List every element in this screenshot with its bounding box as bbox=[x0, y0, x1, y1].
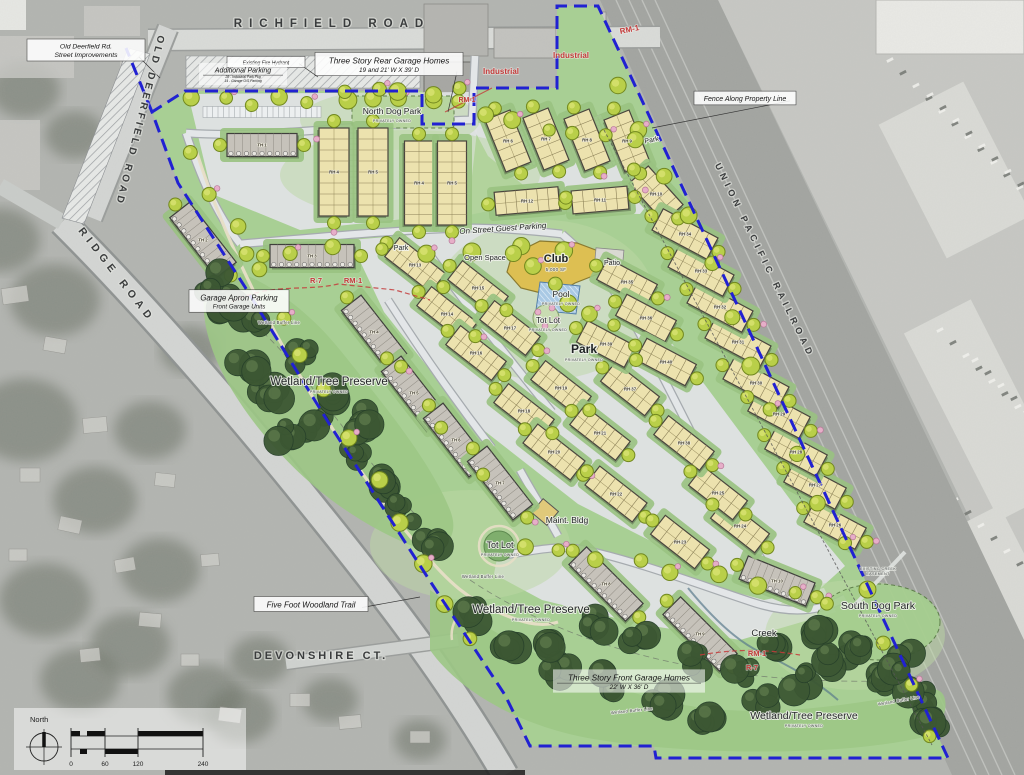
map-label: Tot Lot bbox=[536, 316, 561, 325]
shrub-icon bbox=[532, 519, 538, 525]
legend-panel bbox=[14, 708, 246, 770]
building-label: RH 22 bbox=[610, 492, 623, 497]
tree-icon bbox=[694, 702, 724, 732]
map-label: Creek bbox=[751, 628, 777, 639]
building-label: RH 34 bbox=[679, 232, 692, 237]
map-label: DEVONSHIRE CT. bbox=[254, 650, 388, 662]
callout-text: 22' W X 36' D bbox=[609, 684, 649, 691]
shrub-icon bbox=[850, 534, 856, 540]
building-label: TH 6 bbox=[451, 438, 461, 443]
parking-lane bbox=[203, 107, 321, 118]
tree-icon bbox=[242, 357, 271, 386]
tree-icon bbox=[891, 662, 910, 681]
shrub-icon bbox=[675, 564, 681, 570]
building-label: RH 30 bbox=[750, 381, 763, 386]
map-label: Open Space bbox=[464, 253, 506, 262]
shrub-icon bbox=[432, 245, 438, 251]
map-label: RM-1 bbox=[344, 276, 362, 285]
legend: North 0 60 120 240 bbox=[14, 708, 246, 770]
map-label: Tot Lot bbox=[486, 540, 514, 550]
shrub-icon bbox=[331, 229, 337, 235]
shrub-icon bbox=[569, 242, 575, 248]
map-label: Patio bbox=[604, 260, 620, 267]
shrub-icon bbox=[642, 187, 648, 193]
tree-icon bbox=[804, 615, 833, 644]
shrub-icon bbox=[517, 111, 523, 117]
shrub-icon bbox=[429, 555, 435, 561]
building-label: RH 31 bbox=[732, 340, 745, 345]
shrub-icon bbox=[385, 80, 391, 86]
tree-icon bbox=[622, 627, 641, 646]
map-label: Wetland Buffer Line bbox=[462, 574, 505, 579]
building-label: RH 40 bbox=[660, 360, 673, 365]
callout-text: Three Story Rear Garage Homes bbox=[329, 56, 450, 65]
building-label: RH 13 bbox=[409, 263, 422, 268]
building-label: RH 11 bbox=[594, 198, 607, 203]
tree-icon bbox=[650, 692, 676, 718]
map-sublabel: PRIVATELY OWNED bbox=[542, 302, 580, 306]
callout-text: Street Improvements bbox=[54, 52, 118, 59]
callout-text: Old Deerfield Rd. bbox=[60, 44, 112, 51]
shrub-icon bbox=[595, 305, 601, 311]
tree-icon bbox=[590, 617, 618, 645]
tree-icon bbox=[264, 426, 293, 455]
shrub-icon bbox=[564, 541, 570, 547]
callout: Garage Apron ParkingFront Garage Units bbox=[189, 290, 289, 313]
callout: Additional Parking28 - Industrial Park P… bbox=[199, 63, 287, 85]
map-label: RICHFIELD ROAD bbox=[234, 18, 430, 30]
tree-icon bbox=[795, 665, 812, 682]
shrub-icon bbox=[406, 368, 412, 374]
tree-icon bbox=[756, 684, 780, 708]
scale-tick-60: 60 bbox=[101, 761, 109, 768]
site-plan-map: Old Deerfield Rd.Street ImprovementsThre… bbox=[0, 0, 1024, 775]
map-label: RM-1 bbox=[748, 649, 766, 658]
map-sublabel: PRIVATELY OWNED bbox=[512, 618, 550, 622]
building-label: TH 8 bbox=[601, 582, 611, 587]
building-label: RH 4 bbox=[329, 170, 339, 175]
shrub-icon bbox=[775, 401, 781, 407]
building-label: RH 14 bbox=[441, 312, 454, 317]
north-label: North bbox=[30, 715, 48, 724]
callout-text: Additional Parking bbox=[214, 68, 272, 75]
callout-text: Garage Apron Parking bbox=[200, 293, 278, 302]
scale-tick-0: 0 bbox=[69, 761, 73, 768]
tree-icon bbox=[494, 631, 524, 661]
shrub-icon bbox=[664, 294, 670, 300]
map-label: 5,000 SF bbox=[546, 267, 567, 272]
building-label: TH 3 bbox=[307, 254, 317, 259]
shrub-icon bbox=[873, 538, 879, 544]
map-label: Park bbox=[571, 342, 597, 356]
tree-icon bbox=[678, 641, 704, 667]
tree-icon bbox=[387, 494, 405, 512]
map-label: Industrial bbox=[553, 51, 589, 60]
callout-text: 19 and 21' W X 39' D bbox=[359, 67, 419, 74]
building-label: RH 28 bbox=[790, 450, 803, 455]
building-label: TH 9 bbox=[695, 632, 705, 637]
callout-text: Front Garage Units bbox=[213, 304, 266, 311]
tree-icon bbox=[535, 633, 565, 663]
building-label: TH 1 bbox=[257, 143, 267, 148]
tree-icon bbox=[850, 635, 871, 656]
building-label: RH 36 bbox=[640, 316, 653, 321]
building-label: RH 32 bbox=[714, 305, 727, 310]
shrub-icon bbox=[601, 173, 607, 179]
shrub-icon bbox=[449, 238, 455, 244]
callout: Three Story Front Garage Homes22' W X 36… bbox=[553, 669, 705, 692]
map-label: Park bbox=[394, 245, 409, 252]
building-label: RH 8 bbox=[582, 138, 592, 143]
building-label: RH 39 bbox=[600, 342, 613, 347]
shrub-icon bbox=[717, 254, 723, 260]
shrub-icon bbox=[718, 463, 724, 469]
building-label: RH 19 bbox=[555, 386, 568, 391]
callout-text: Three Story Front Garage Homes bbox=[568, 673, 690, 682]
callout-text: Five Foot Woodland Trail bbox=[267, 600, 356, 609]
building-label: RH 20 bbox=[548, 450, 561, 455]
building-label: RH 9 bbox=[622, 139, 632, 144]
building-label: TH 4 bbox=[369, 330, 379, 335]
callout-text: Fence Along Property Line bbox=[704, 96, 787, 103]
map-label: EXISTING CREEK bbox=[860, 567, 896, 571]
building-label: RH 29 bbox=[773, 412, 786, 417]
scale-tick-240: 240 bbox=[198, 761, 209, 768]
tree-icon bbox=[720, 655, 749, 684]
shrub-icon bbox=[644, 121, 650, 127]
scale-tick-120: 120 bbox=[133, 761, 144, 768]
map-sublabel: PRIVATELY OWNED bbox=[785, 724, 823, 728]
shrub-icon bbox=[295, 245, 301, 251]
shrub-icon bbox=[917, 676, 923, 682]
map-sublabel: PRIVATELY OWNED bbox=[481, 553, 519, 557]
map-label: Maint. Bldg bbox=[546, 515, 589, 525]
shrub-icon bbox=[800, 584, 806, 590]
map-label: Wetland/Tree Preserve bbox=[472, 604, 590, 616]
map-sublabel: PRIVATELY OWNED bbox=[373, 119, 411, 123]
map-label: Club bbox=[544, 253, 569, 265]
building-label: RH 10 bbox=[650, 192, 663, 197]
map-label: EASEMENT bbox=[866, 572, 890, 576]
building-label: TH 7 bbox=[495, 481, 505, 486]
building-label: RH 38 bbox=[678, 441, 691, 446]
map-label: R-7 bbox=[310, 276, 322, 285]
building-label: RH 17 bbox=[504, 326, 517, 331]
map-sublabel: PRIVATELY OWNED bbox=[529, 328, 567, 332]
building-label: RH 4 bbox=[414, 181, 424, 186]
building-label: RH 15 bbox=[472, 286, 485, 291]
map-label: Wetland Buffer Line bbox=[258, 320, 301, 325]
shrub-icon bbox=[289, 309, 295, 315]
callout-text: 14 - Garage O/S Parking bbox=[224, 79, 261, 83]
shrub-icon bbox=[354, 429, 360, 435]
building-label: TH 10 bbox=[771, 579, 783, 584]
shrub-icon bbox=[481, 334, 487, 340]
building-label: RH 7 bbox=[541, 137, 551, 142]
building-label: RH 25 bbox=[712, 491, 725, 496]
map-label: Pool bbox=[552, 289, 569, 299]
map-label: Industrial bbox=[483, 67, 519, 76]
shrub-icon bbox=[611, 126, 617, 132]
building-label: TH 2 bbox=[198, 238, 208, 243]
tree-icon bbox=[355, 410, 384, 439]
building-label: RH 12 bbox=[521, 199, 534, 204]
building-label: RH 21 bbox=[594, 431, 607, 436]
map-label: Wetland/Tree Preserve bbox=[750, 710, 858, 722]
site-plan: Old Deerfield Rd.Street ImprovementsThre… bbox=[0, 0, 1024, 775]
building-label: RH 27 bbox=[809, 483, 822, 488]
building-label: RH 33 bbox=[695, 269, 708, 274]
shrub-icon bbox=[214, 186, 220, 192]
map-label: South Dog Park bbox=[841, 600, 916, 612]
map-sublabel: PRIVATELY OWNED bbox=[310, 390, 348, 394]
building-label: RH 16 bbox=[470, 351, 483, 356]
building-label: RH 23 bbox=[674, 540, 687, 545]
shrub-icon bbox=[465, 79, 471, 85]
building-label: RH 5 bbox=[368, 170, 378, 175]
building-label: RH 37 bbox=[624, 387, 637, 392]
map-label: R-7 bbox=[746, 663, 758, 672]
building-label: RH 26 bbox=[829, 523, 842, 528]
building-label: RH 24 bbox=[734, 524, 747, 529]
shrub-icon bbox=[817, 427, 823, 433]
shrub-icon bbox=[312, 94, 318, 100]
map-label: Wetland/Tree Preserve bbox=[270, 376, 388, 388]
shrub-icon bbox=[761, 321, 767, 327]
map-sublabel: PRIVATELY OWNED bbox=[859, 614, 897, 618]
map-label: North Dog Park bbox=[363, 106, 422, 116]
building-label: RH 18 bbox=[518, 409, 531, 414]
building-label: TH 5 bbox=[409, 391, 419, 396]
map-sublabel: PRIVATELY OWNED bbox=[565, 358, 603, 362]
building-label: RH 6 bbox=[503, 139, 513, 144]
shrub-icon bbox=[544, 348, 550, 354]
shrub-icon bbox=[314, 136, 320, 142]
map-label: RM-1 bbox=[458, 97, 475, 104]
building-label: RH 35 bbox=[621, 280, 634, 285]
building-label: RH 5 bbox=[447, 181, 457, 186]
